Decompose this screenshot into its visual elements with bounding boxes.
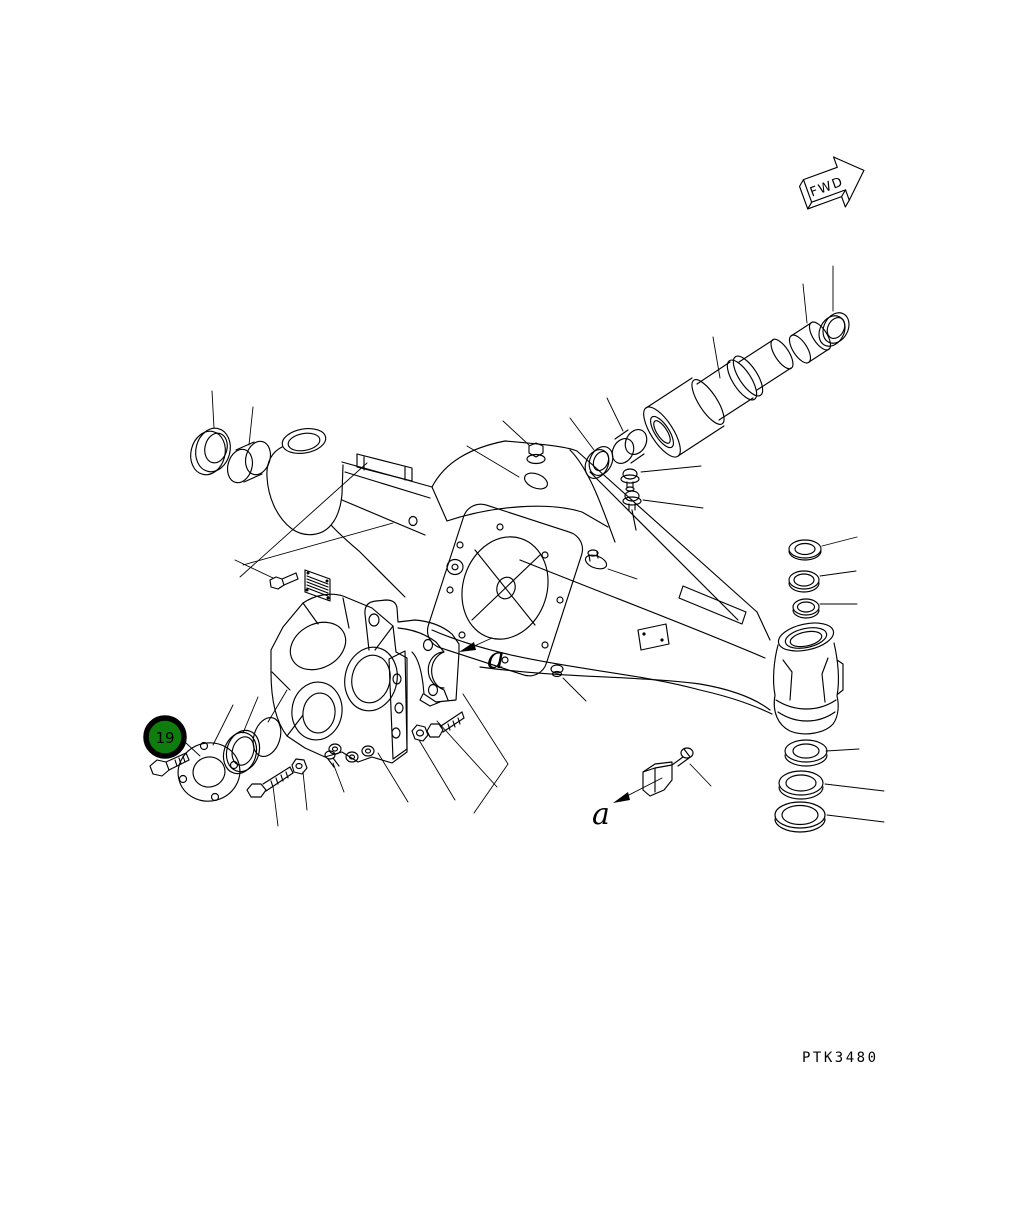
lower-ring-stack: [775, 740, 827, 832]
pinion-carrier: [271, 594, 407, 763]
view-a-lower-arrowhead: [613, 792, 630, 803]
carrier-bolts: [412, 712, 464, 741]
hex-plug: [527, 443, 545, 464]
cap-bracket: [365, 600, 459, 706]
part-19-callout-number: 19: [155, 729, 174, 747]
view-a-lower: a: [592, 778, 662, 832]
upper-ring-stack: [789, 540, 821, 618]
axle-housing-exploded-diagram: FWD: [0, 0, 1022, 1219]
left-bushing-and-seal: [186, 425, 274, 486]
spindle: [637, 336, 797, 462]
right-kingpin-boss: [774, 618, 843, 733]
view-a-lower-label: a: [592, 797, 610, 832]
stopper-bracket: [643, 748, 693, 796]
view-a-upper: a: [459, 638, 505, 676]
fwd-arrow-icon: FWD: [794, 149, 873, 219]
identification-plate: [305, 570, 330, 601]
spindle-bushing-and-ring: [785, 308, 854, 366]
leader-lines: [186, 266, 884, 826]
breather-valve: [584, 550, 609, 571]
parts-diagram-page: FWD: [0, 0, 1022, 1219]
drawing-number: PTK3480: [802, 1050, 879, 1066]
axle-housing: [267, 425, 772, 714]
plate-screw: [270, 573, 298, 589]
part-19-callout[interactable]: 19: [146, 718, 184, 756]
view-a-upper-label: a: [487, 641, 505, 676]
